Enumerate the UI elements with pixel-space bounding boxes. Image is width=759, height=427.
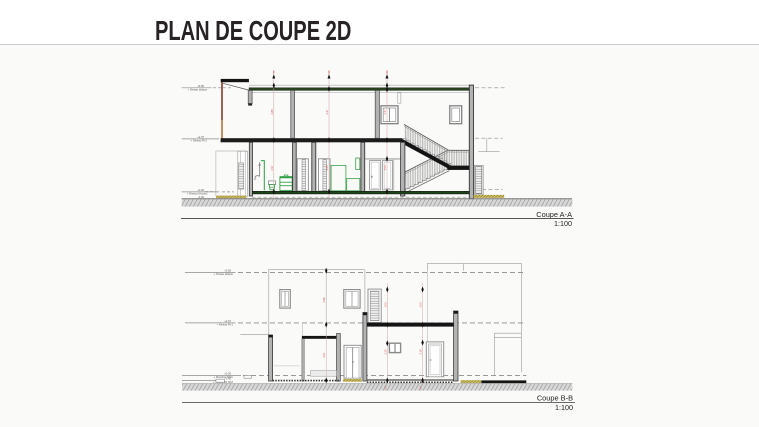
svg-text:+2.97: +2.97 — [224, 319, 231, 323]
svg-text:2.88: 2.88 — [322, 297, 326, 303]
svg-text:0.4: 0.4 — [419, 386, 423, 390]
svg-text:2.47: 2.47 — [325, 109, 329, 115]
svg-text:2.18: 2.18 — [419, 349, 423, 355]
svg-text:+ Niveau R+1: + Niveau R+1 — [217, 323, 234, 327]
svg-text:0.4: 0.4 — [383, 386, 387, 390]
svg-text:+ Niveau attique: + Niveau attique — [188, 88, 208, 92]
svg-text:Coupe B-B: Coupe B-B — [537, 394, 573, 403]
svg-text:+2.97: +2.97 — [197, 135, 204, 139]
svg-text:1.00: 1.00 — [419, 302, 423, 308]
svg-text:1:100: 1:100 — [554, 219, 572, 228]
svg-text:+5.85: +5.85 — [224, 269, 231, 273]
svg-text:1:100: 1:100 — [555, 403, 573, 412]
svg-text:1.05: 1.05 — [383, 302, 387, 308]
svg-text:2.50: 2.50 — [325, 165, 329, 171]
svg-text:+0.00: +0.00 — [197, 188, 204, 192]
svg-text:2.20: 2.20 — [383, 349, 387, 355]
svg-text:+ Niveau (Acces): + Niveau (Acces) — [187, 192, 208, 196]
svg-text:+5.85: +5.85 — [197, 84, 204, 88]
svg-text:2.97: 2.97 — [322, 352, 326, 358]
svg-text:Coupe A-A: Coupe A-A — [536, 210, 572, 219]
svg-text:2.97: 2.97 — [270, 165, 274, 171]
svg-text:2.47: 2.47 — [383, 109, 387, 115]
svg-text:2.88: 2.88 — [270, 109, 274, 115]
svg-text:+0.00: +0.00 — [224, 372, 231, 376]
svg-text:1.03: 1.03 — [383, 165, 387, 171]
svg-text:+ Niveau R+1: + Niveau R+1 — [191, 139, 208, 143]
svg-text:+ Niveau attique: + Niveau attique — [214, 272, 234, 276]
svg-text:-0.40: -0.40 — [225, 377, 232, 381]
